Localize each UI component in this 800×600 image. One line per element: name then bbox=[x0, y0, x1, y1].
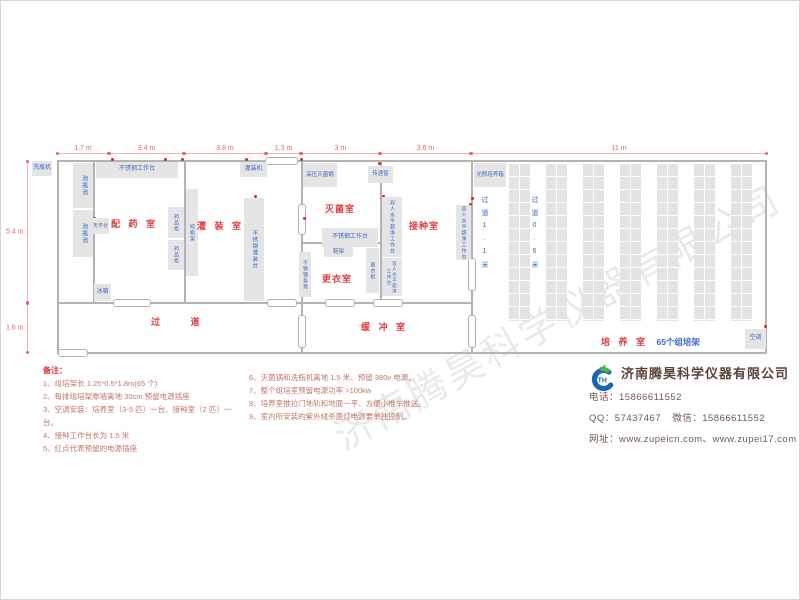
filling-machine: 灌装机 bbox=[240, 162, 267, 177]
culture-rack bbox=[509, 164, 530, 321]
bottle-washer: 洗瓶机 bbox=[32, 161, 52, 176]
light-incubator: 光照培养箱 bbox=[474, 163, 506, 187]
note-item: 1、组培架长 1.25*0.5*1.8m(65 个) bbox=[43, 377, 243, 390]
room-label-cultivation: 培 养 室 65个组培架 bbox=[601, 332, 700, 350]
dimension-top-5: 3 m bbox=[301, 148, 380, 154]
phone-label: 电话： bbox=[589, 392, 619, 403]
note-item: 2、每排组培架靠墙离地 30cm 预留电源插座 bbox=[43, 390, 243, 403]
web-value: www.zupeicn.com、www.zupei17.com bbox=[619, 434, 797, 445]
culture-rack bbox=[620, 164, 641, 321]
company-phone-line: 电话：15866611552 bbox=[589, 389, 797, 403]
steel-worktable: 不锈钢工作台 bbox=[96, 162, 178, 178]
steel-worktable: 不锈钢工作台 bbox=[322, 228, 378, 247]
company-logo-icon: TH bbox=[589, 365, 615, 393]
power-outlet-dot bbox=[378, 162, 381, 165]
dimension-top-4: 1.3 m bbox=[266, 148, 301, 154]
door-symbol bbox=[267, 299, 297, 307]
phone-value: 15866611552 bbox=[619, 392, 682, 403]
wechat-label: 微信： bbox=[672, 413, 702, 424]
power-outlet-dot bbox=[245, 158, 248, 161]
culture-rack bbox=[731, 164, 752, 321]
wall-bottom bbox=[57, 352, 767, 354]
room-label-filling: 灌 装 室 bbox=[197, 219, 244, 232]
room-label-buffer: 缓 冲 室 bbox=[361, 320, 408, 333]
room-label-changing: 更衣室 bbox=[322, 272, 352, 285]
note-item: 7、整个组培室预留电源功率 >100kw bbox=[249, 384, 459, 397]
bottle-rack: 晾瓶架 bbox=[186, 189, 198, 276]
steel-bench: 不锈钢条凳 bbox=[299, 252, 311, 297]
culture-rack bbox=[694, 164, 715, 321]
company-qq-line: QQ：57437467 微信：15866611552 bbox=[589, 410, 797, 424]
air-conditioner: 空调 bbox=[745, 329, 766, 349]
company-info: TH 济南腾昊科学仪器有限公司 电话：15866611552 QQ：574374… bbox=[589, 363, 797, 445]
notes-column-2: 6、灭菌锅和洗瓶机离地 1.5 米、预留 380v 电源。 7、整个组培室预留电… bbox=[249, 371, 459, 423]
note-item: 3、空调安装：培养室（3-5 匹）一台、接种室（2 匹）一台。 bbox=[43, 403, 243, 429]
cultivation-rack-count: 65个组培架 bbox=[656, 337, 699, 347]
room-label-inoculation: 接种室 bbox=[409, 219, 439, 232]
fridge: 冰箱 bbox=[94, 284, 111, 301]
wechat-value: 15866611552 bbox=[702, 413, 765, 424]
clean-bench: 双人水平超净工作台 bbox=[382, 197, 402, 257]
door-symbol bbox=[58, 349, 88, 357]
dimension-top-6: 3.6 m bbox=[380, 148, 471, 154]
dimension-top-2: 3.4 m bbox=[109, 148, 184, 154]
dimension-top-1: 1.7 m bbox=[57, 148, 109, 154]
room-label-sterilization: 灭菌室 bbox=[325, 202, 355, 215]
power-outlet-dot bbox=[300, 158, 303, 161]
door-symbol bbox=[468, 258, 476, 291]
dimension-left-upper: 5.4 m bbox=[27, 161, 33, 303]
culture-rack bbox=[657, 164, 678, 321]
door-symbol bbox=[325, 299, 355, 307]
shoe-rack: 鞋架 bbox=[324, 247, 353, 257]
note-item: 5、红点代表预留的电源插座 bbox=[43, 442, 243, 455]
notes-title: 备注： bbox=[43, 364, 243, 377]
notes-column-1: 备注： 1、组培架长 1.25*0.5*1.8m(65 个) 2、每排组培架靠墙… bbox=[43, 364, 243, 455]
qq-value: 57437467 bbox=[615, 413, 661, 424]
floor-plan-page: 济南腾昊科学仪器有限公司 1.7 m 3.4 m 3.8 m 1.3 m 3 m… bbox=[0, 0, 800, 600]
note-item: 8、培养室推拉门地轨和地面一平、方便小推车推送。 bbox=[249, 397, 459, 410]
soaking-pool: 泡瓶池 bbox=[73, 210, 93, 257]
svg-text:TH: TH bbox=[598, 377, 607, 384]
power-outlet-dot bbox=[764, 325, 767, 328]
culture-rack bbox=[583, 164, 604, 321]
note-item: 9、室内所安装的紫外线杀菌灯电源要单独控制。 bbox=[249, 410, 459, 423]
web-label: 网址： bbox=[589, 434, 619, 445]
power-outlet-dot bbox=[111, 158, 114, 161]
wardrobe: 更衣柜 bbox=[366, 248, 379, 293]
room-label-dispensing: 配 药 室 bbox=[111, 217, 158, 230]
door-symbol bbox=[113, 299, 151, 307]
door-symbol bbox=[298, 315, 306, 348]
company-web-line: 网址：www.zupeicn.com、www.zupei17.com bbox=[589, 431, 797, 445]
note-item: 4、接种工作台长为 1.5 米 bbox=[43, 429, 243, 442]
company-name: 济南腾昊科学仪器有限公司 bbox=[621, 363, 797, 382]
dimension-top-3: 3.8 m bbox=[184, 148, 266, 154]
medicine-cabinet: 药品柜 bbox=[168, 207, 184, 238]
aisle-width-label: 过道0.6米 bbox=[529, 196, 539, 274]
balance-table: 天平台 bbox=[92, 218, 109, 234]
power-outlet-dot bbox=[471, 197, 474, 200]
dimension-top-7: 11 m bbox=[471, 148, 767, 154]
culture-rack bbox=[546, 164, 567, 321]
steel-filling-table: 不锈钢灌装台 bbox=[244, 198, 264, 301]
door-symbol bbox=[373, 299, 403, 307]
door-symbol bbox=[265, 157, 298, 165]
clean-bench: 双人水平超净工作台 bbox=[382, 258, 402, 296]
qq-label: QQ： bbox=[589, 413, 615, 424]
power-outlet-dot bbox=[181, 158, 184, 161]
autoclave: 高压灭菌锅 bbox=[303, 163, 337, 187]
power-outlet-dot bbox=[164, 158, 167, 161]
dimension-left-lower: 1.6 m bbox=[27, 303, 33, 353]
medicine-cabinet: 药品柜 bbox=[168, 240, 184, 270]
door-symbol bbox=[468, 315, 476, 348]
wall-left bbox=[57, 160, 59, 354]
aisle-width-label: 过道1.1米 bbox=[479, 196, 489, 274]
soaking-pool: 泡瓶池 bbox=[73, 163, 93, 208]
room-label-corridor: 过 道 bbox=[151, 315, 214, 328]
clean-bench: 双人水平超净工作台 bbox=[456, 205, 471, 260]
cultivation-name: 培 养 室 bbox=[601, 337, 648, 347]
pass-window: 传递窗 bbox=[368, 166, 393, 183]
note-item: 6、灭菌锅和洗瓶机离地 1.5 米、预留 380v 电源。 bbox=[249, 371, 459, 384]
power-outlet-dot bbox=[303, 217, 306, 220]
